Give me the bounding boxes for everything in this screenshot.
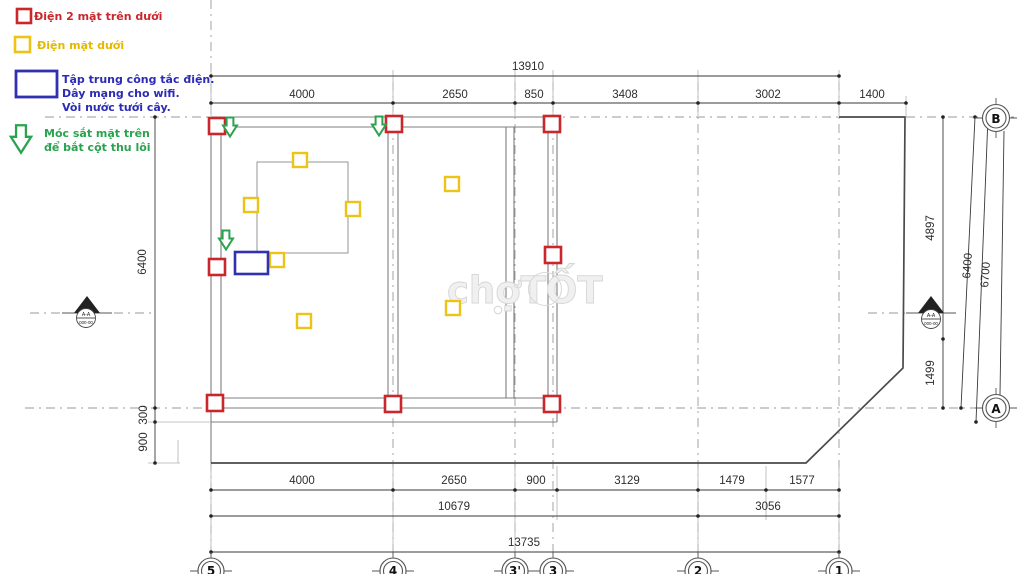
grid-bubble-5: 5	[190, 552, 232, 574]
grid-bubble-3p: 3'	[494, 552, 536, 574]
legend-red-square-icon	[17, 9, 31, 23]
watermark-text: chợTỐT	[447, 263, 603, 312]
grid-bubble-B: B	[975, 98, 1017, 138]
dim-left-3: 900	[138, 432, 150, 451]
dim-top-4: 3408	[612, 89, 638, 101]
switch-panel-symbol	[235, 252, 268, 274]
outlet-two-face-symbol	[207, 395, 223, 411]
legend-item-4-line-1: Móc sắt mặt trên	[44, 127, 150, 140]
outlet-two-face-symbol	[209, 259, 225, 275]
dimension-ticks	[153, 74, 990, 554]
dim-bot-2: 2650	[441, 475, 467, 487]
architectural-plan-image: 13910 4000 2650 850 3408 3002 1400 4000 …	[0, 0, 1024, 574]
svg-text:2: 2	[694, 564, 702, 574]
legend-item-3-line-3: Vòi nước tưới cây.	[62, 101, 171, 114]
legend-blue-rectangle-icon	[16, 71, 57, 97]
legend-green-arrow-icon	[11, 125, 31, 153]
grid-bubbles-bottom: 5 4 3' 3 2 1	[190, 552, 860, 574]
dim-right-2: 1499	[925, 360, 937, 386]
legend: Điện 2 mặt trên dưới Điện mặt dưới Tập t…	[11, 9, 215, 154]
dim-bot-total: 13735	[508, 537, 540, 549]
dim-top-2: 2650	[442, 89, 468, 101]
watermark: chợTỐT	[447, 263, 603, 314]
legend-yellow-square-icon	[15, 37, 30, 52]
dim-right-3: 6400	[961, 253, 975, 279]
section-label: A-A	[927, 313, 936, 319]
top-dimensions: 13910 4000 2650 850 3408 3002 1400	[211, 61, 906, 103]
dim-bot-6: 1577	[789, 475, 815, 487]
dim-top-1: 4000	[289, 89, 315, 101]
grid-bubble-2: 2	[677, 552, 719, 574]
legend-item-3-line-2: Dây mạng cho wifi.	[62, 87, 180, 100]
dim-bot-5: 1479	[719, 475, 745, 487]
grid-bubble-A: A	[975, 388, 1017, 428]
outlet-two-face-symbol	[544, 116, 560, 132]
dim-bot-3: 900	[526, 475, 545, 487]
dim-bot-1: 4000	[289, 475, 315, 487]
inner-room-outline	[257, 162, 348, 253]
legend-item-1-label: Điện 2 mặt trên dưới	[34, 10, 162, 23]
legend-item-3-line-1: Tập trung công tắc điện.	[62, 73, 214, 86]
svg-text:1: 1	[835, 564, 843, 574]
section-marker-right: A-A 000-00	[906, 296, 956, 329]
right-dimensions: 4897 1499 6400 6700	[925, 117, 1004, 422]
svg-text:B: B	[991, 112, 1000, 126]
floor-plan-drawing: 13910 4000 2650 850 3408 3002 1400 4000 …	[0, 0, 1024, 574]
outlet-two-face-symbol	[385, 396, 401, 412]
svg-text:A: A	[991, 402, 1001, 416]
grid-bubble-1: 1	[818, 552, 860, 574]
svg-text:4: 4	[389, 564, 397, 574]
outlet-bottom-face-symbol	[446, 301, 460, 315]
outlet-two-face-symbol	[545, 247, 561, 263]
dim-top-5: 3002	[755, 89, 781, 101]
dim-bot-4: 3129	[614, 475, 640, 487]
outlet-bottom-face-symbol	[346, 202, 360, 216]
outlet-two-face-symbol	[386, 116, 402, 132]
dim-bot-sub-2: 3056	[755, 501, 781, 513]
outlet-bottom-face-symbol	[445, 177, 459, 191]
svg-text:3': 3'	[509, 564, 521, 574]
section-marker-left: A-A 000-00	[62, 296, 112, 328]
dim-right-1: 4897	[925, 215, 937, 241]
left-dimensions: 6400 300 900	[137, 117, 155, 463]
outlet-bottom-face-symbol	[293, 153, 307, 167]
outlet-bottom-face-symbol	[297, 314, 311, 328]
dim-bot-sub-1: 10679	[438, 501, 470, 513]
lightning-rod-hook-symbol	[372, 117, 386, 136]
dim-top-total: 13910	[512, 61, 544, 73]
dim-left-1: 6400	[137, 249, 149, 275]
electrical-symbols-layer	[207, 116, 561, 412]
legend-item-4-line-2: để bắt cột thu lôi	[44, 141, 151, 154]
grid-bubble-3: 3	[532, 552, 574, 574]
dim-top-6: 1400	[859, 89, 885, 101]
dim-left-2: 300	[138, 405, 150, 424]
outlet-bottom-face-symbol	[270, 253, 284, 267]
section-sheet: 000-00	[924, 321, 938, 326]
legend-item-2-label: Điện mặt dưới	[37, 39, 124, 52]
section-sheet: 000-00	[79, 320, 93, 325]
outlet-bottom-face-symbol	[244, 198, 258, 212]
svg-text:5: 5	[207, 564, 215, 574]
outlet-two-face-symbol	[544, 396, 560, 412]
dim-right-4: 6700	[979, 262, 993, 288]
dim-top-3: 850	[524, 89, 543, 101]
section-label: A-A	[82, 312, 91, 318]
svg-text:3: 3	[549, 564, 557, 574]
grid-bubble-4: 4	[372, 552, 414, 574]
bottom-dimensions: 4000 2650 900 3129 1479 1577 10679 3056 …	[211, 475, 839, 552]
